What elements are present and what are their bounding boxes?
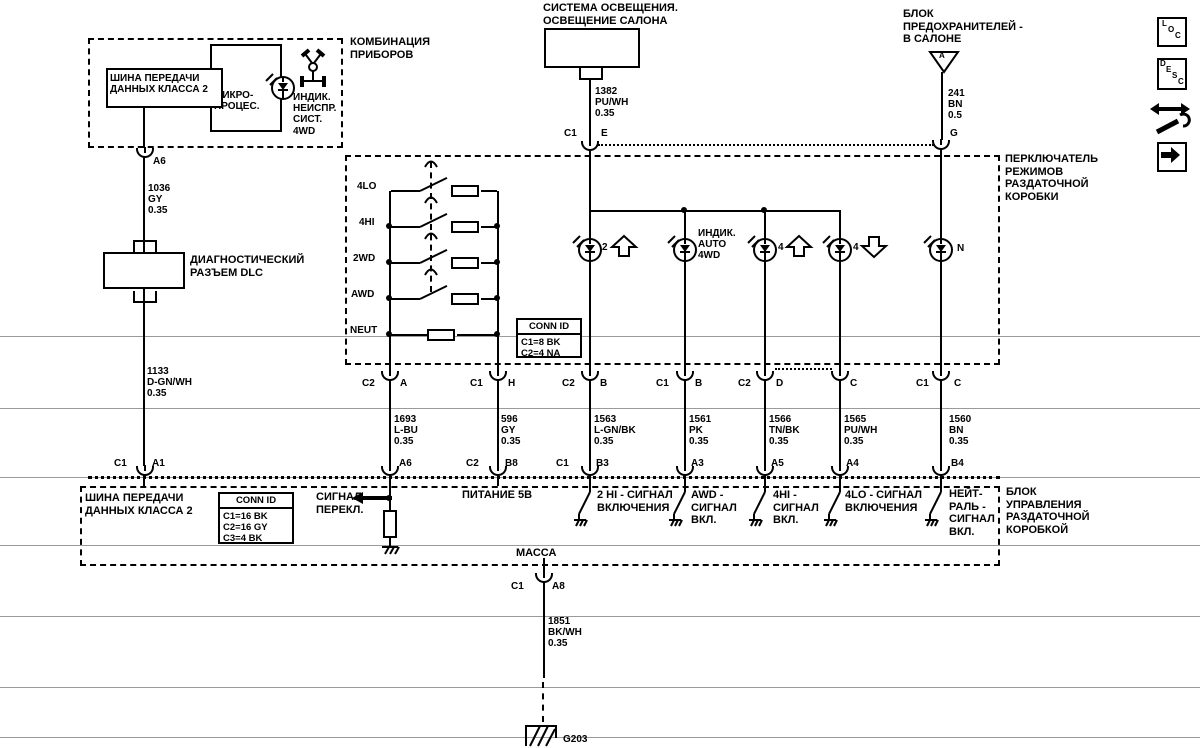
connector-c1b: [676, 371, 694, 381]
tccm-5v-label: ПИТАНИЕ 5В: [462, 489, 532, 502]
wire-1851: [543, 582, 545, 678]
connector-c1c: [932, 371, 950, 381]
connector-face-line: [88, 476, 1000, 479]
sense-switch-4hi-icon: [749, 486, 771, 532]
dlc-box: [103, 252, 185, 289]
loc-letter: C: [1175, 32, 1181, 40]
grid-line: [0, 687, 1200, 688]
pin-label: C1: [556, 458, 569, 469]
adjust-wrench-icon: [1150, 100, 1194, 136]
lamp-neutral-icon: [922, 233, 958, 267]
lamp-neutral-label: N: [957, 243, 964, 254]
tccm-pullup-wire: [389, 486, 391, 510]
connector-g: [932, 140, 950, 150]
connector-b4: [932, 466, 950, 476]
wire-label-241: 241 BN 0.5: [948, 88, 965, 122]
pin-label: C1: [656, 378, 669, 389]
pin-label: C1: [511, 581, 524, 592]
connector-a1: [136, 466, 154, 476]
connector-face-line: [775, 368, 832, 370]
position-2wd: 2WD: [353, 253, 375, 264]
desc-letter: S: [1172, 72, 1177, 80]
tccm-pullup-wire: [389, 538, 391, 546]
grid-line: [0, 408, 1200, 409]
tccm-4lo-label: 4LO - СИГНАЛ ВКЛЮЧЕНИЯ: [845, 489, 922, 514]
wire-label-1560: 1560 BN 0.35: [949, 414, 971, 448]
lamp-4hi-icon: [746, 233, 782, 267]
connector-b3: [581, 466, 599, 476]
wire-label-1382: 1382 PU/WH 0.35: [595, 86, 628, 120]
connector-face-line: [598, 144, 934, 146]
pin-label: C1: [916, 378, 929, 389]
tccm-awd-label: AWD - СИГНАЛ ВКЛ.: [691, 489, 737, 527]
pin-label: C1: [564, 128, 577, 139]
ground-wire: [543, 558, 545, 573]
class2-bus-label: ШИНА ПЕРЕДАЧИ ДАННЫХ КЛАССА 2: [110, 73, 208, 95]
desc-letter: C: [1178, 78, 1184, 86]
up-arrow-icon: [787, 236, 813, 258]
wire-label-1563: 1563 L-GN/BK 0.35: [594, 414, 636, 448]
conn-id-rows: C1=16 BK C2=16 GY C3=4 BK: [220, 509, 292, 546]
loc-letter: O: [1168, 26, 1174, 34]
tccm-4hi-label: 4HI - СИГНАЛ ВКЛ.: [773, 489, 819, 527]
right-arrow-icon: [1159, 145, 1183, 165]
pin-label: C: [954, 378, 961, 389]
connector-c: [831, 371, 849, 381]
wire-label-1566: 1566 TN/BK 0.35: [769, 414, 800, 448]
lighting-box: [544, 28, 640, 68]
lamp-4lo-icon: [821, 233, 857, 267]
sense-switch-2hi-icon: [574, 486, 596, 532]
lamp-4lo-label: 4: [853, 242, 859, 253]
wiring-diagram: КОМБИНАЦИЯ ПРИБОРОВ МИКРО- ПРОЦЕС. ШИНА …: [0, 0, 1200, 748]
down-arrow-icon: [862, 237, 888, 259]
grid-line: [0, 616, 1200, 617]
wire-label-1036: 1036 GY 0.35: [148, 183, 170, 217]
wire-label-1565: 1565 PU/WH 0.35: [844, 414, 877, 448]
pin-label: B4: [951, 458, 964, 469]
connector-a3: [676, 466, 694, 476]
lamp-2hi-label: 2: [602, 242, 608, 253]
connector-c1h: [489, 371, 507, 381]
pin-label: D: [776, 378, 783, 389]
pin-label: A6: [399, 458, 412, 469]
pin-label: C2: [362, 378, 375, 389]
lamp-auto4wd-label: ИНДИК. AUTO 4WD: [698, 228, 736, 262]
lamp-auto4wd-icon: [666, 233, 702, 267]
tccm-neutral-label: НЕЙТ- РАЛЬ - СИГНАЛ ВКЛ.: [949, 488, 995, 539]
lighting-connector-bracket: [579, 68, 603, 80]
pin-label: A: [400, 378, 407, 389]
desc-letter: D: [1160, 60, 1166, 68]
position-4lo: 4LO: [357, 181, 376, 192]
dlc-label: ДИАГНОСТИЧЕСКИЙ РАЗЪЕМ DLC: [190, 254, 304, 279]
wire-label-1561: 1561 PK 0.35: [689, 414, 711, 448]
up-arrow-icon: [612, 236, 638, 258]
pin-label: C2: [562, 378, 575, 389]
position-awd: AWD: [351, 289, 374, 300]
sense-switch-4lo-icon: [824, 486, 846, 532]
pin-label: C2: [738, 378, 751, 389]
conn-id-box-switch: CONN ID C1=8 BK C2=4 NA: [516, 318, 582, 358]
fuse-block-title: БЛОК ПРЕДОХРАНИТЕЛЕЙ - В САЛОНЕ: [903, 8, 1023, 46]
dlc-connector-bracket: [133, 291, 157, 303]
fuse-triangle-letter: A: [939, 52, 945, 60]
mil-indicator-label: ИНДИК. НЕИСПР. СИСТ. 4WD: [293, 92, 336, 137]
pin-label: B: [695, 378, 702, 389]
tccm-pullup-resistor: [383, 510, 397, 538]
pin-label: C1: [470, 378, 483, 389]
conn-id-box-tccm: CONN ID C1=16 BK C2=16 GY C3=4 BK: [218, 492, 294, 544]
position-neut: NEUT: [350, 325, 377, 336]
conn-id-rows: C1=8 BK C2=4 NA: [518, 335, 580, 361]
tccm-ground-label: МАССА: [516, 547, 556, 560]
pin-label: A8: [552, 581, 565, 592]
sense-switch-awd-icon: [669, 486, 691, 532]
connector-a4: [831, 466, 849, 476]
conn-id-title: CONN ID: [518, 320, 580, 335]
wire-241: [941, 72, 943, 140]
sense-switch-neutral-icon: [925, 486, 947, 532]
desc-letter: E: [1166, 66, 1171, 74]
wire-label-1133: 1133 D-GN/WH 0.35: [147, 366, 192, 400]
connector-c2d: [756, 371, 774, 381]
pin-label: E: [601, 128, 608, 139]
loc-letter: L: [1162, 20, 1167, 28]
pin-label: A6: [153, 156, 166, 167]
connector-a6: [381, 466, 399, 476]
wire-label-596: 596 GY 0.35: [501, 414, 520, 448]
pin-label: H: [508, 378, 515, 389]
wire-label-1851: 1851 BK/WH 0.35: [548, 616, 582, 650]
pin-label: C: [850, 378, 857, 389]
tccm-2hi-label: 2 HI - СИГНАЛ ВКЛЮЧЕНИЯ: [597, 489, 673, 514]
connector-c2a: [381, 371, 399, 381]
connector-b8: [489, 466, 507, 476]
connector-c2b: [581, 371, 599, 381]
pin-label: C2: [466, 458, 479, 469]
pin-label: G: [950, 128, 958, 139]
tcase-switch-label: ПЕРКЛЮЧАТЕЛЬ РЕЖИМОВ РАЗДАТОЧНОЙ КОРОБКИ: [1005, 153, 1098, 204]
pin-label: B: [600, 378, 607, 389]
pin-label: C1: [114, 458, 127, 469]
lighting-title: СИСТЕМА ОСВЕЩЕНИЯ. ОСВЕЩЕНИЕ САЛОНА: [543, 2, 678, 27]
tccm-label: БЛОК УПРАВЛЕНИЯ РАЗДАТОЧНОЙ КОРОБКОЙ: [1006, 486, 1090, 537]
wire-label-1693: 1693 L-BU 0.35: [394, 414, 418, 448]
connector-a5: [756, 466, 774, 476]
connector-e: [581, 141, 599, 151]
grid-line: [0, 737, 1200, 738]
connector-a6-top: [136, 148, 154, 158]
conn-id-title: CONN ID: [220, 494, 292, 509]
4wd-drivetrain-icon: [298, 48, 328, 92]
lamp-4hi-label: 4: [778, 242, 784, 253]
g203-ground-icon: [522, 722, 560, 748]
ground-icon: [381, 546, 399, 558]
dlc-connector-bracket: [133, 240, 157, 252]
tccm-class2-label: ШИНА ПЕРЕДАЧИ ДАННЫХ КЛАССА 2: [85, 492, 193, 517]
g203-label: G203: [563, 734, 587, 745]
wire-1851-dashed: [542, 682, 544, 722]
wire-1382: [589, 78, 591, 141]
instrument-cluster-label: КОМБИНАЦИЯ ПРИБОРОВ: [350, 36, 430, 61]
position-4hi: 4HI: [359, 217, 375, 228]
